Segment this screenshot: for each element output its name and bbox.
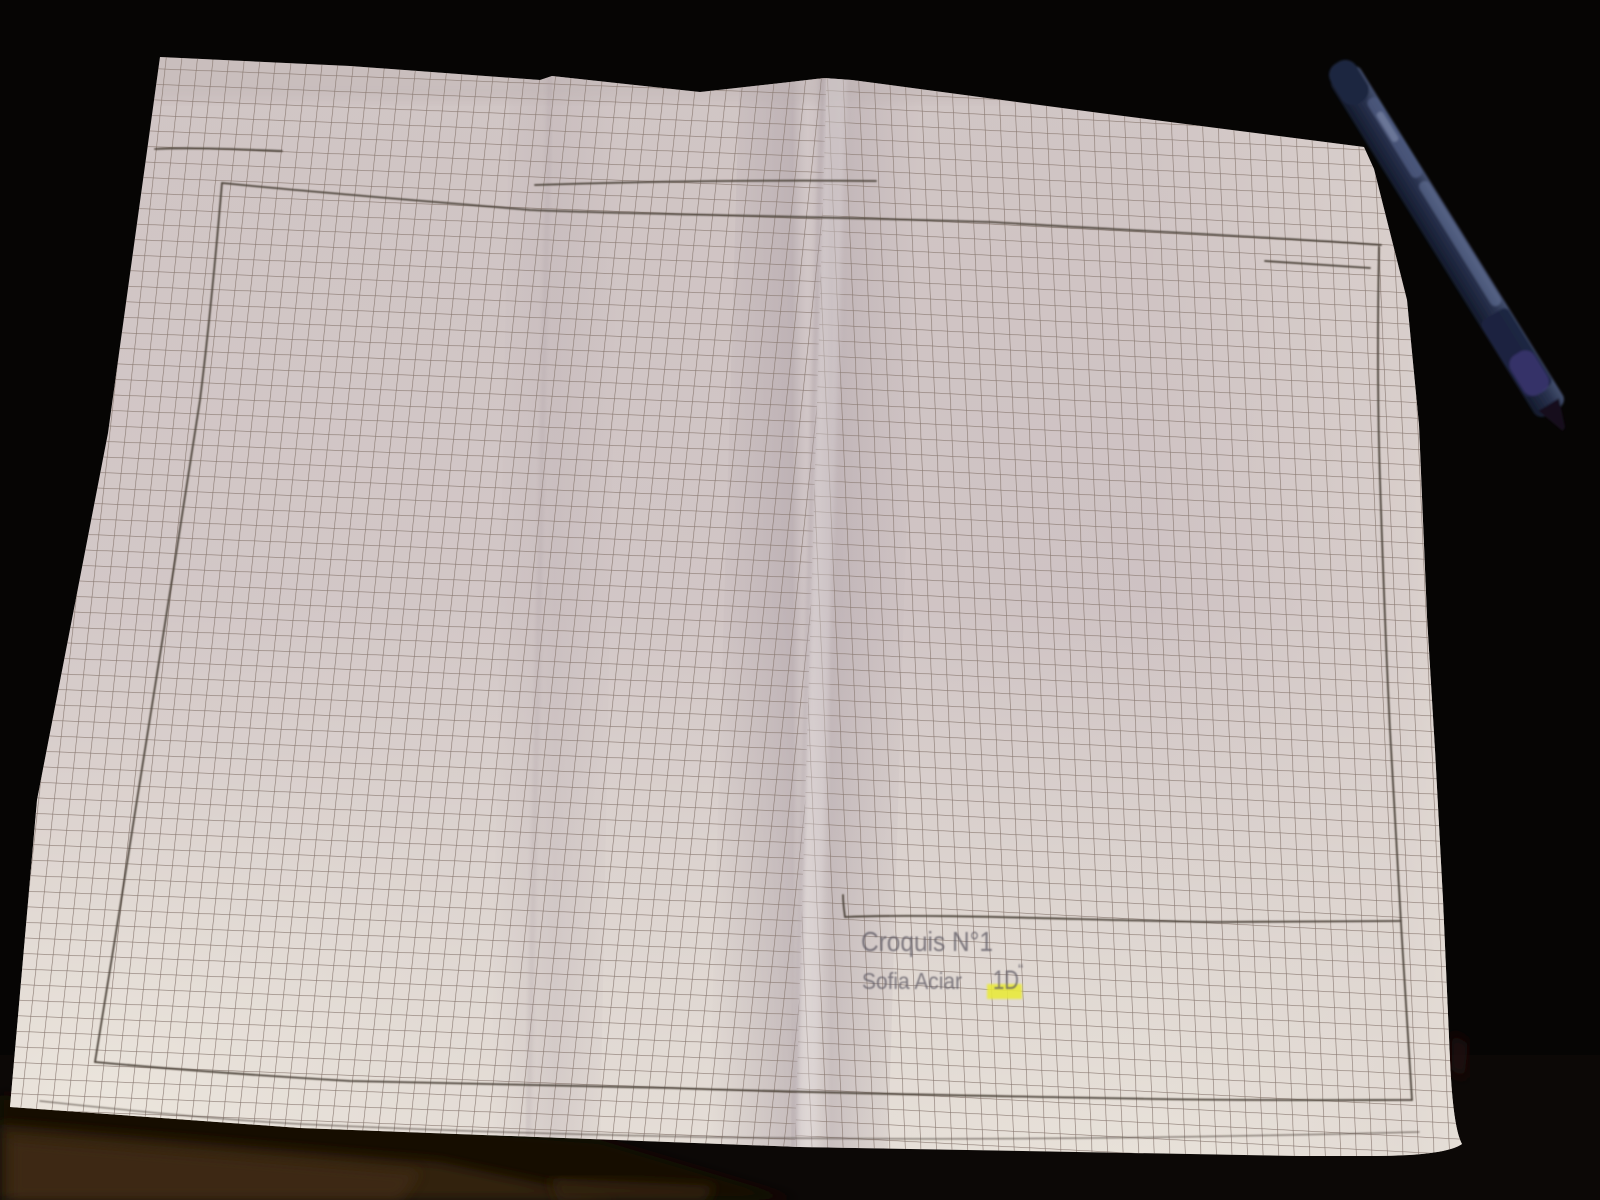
svg-text:“: “: [1018, 962, 1023, 979]
svg-text:Croquis N°1: Croquis N°1: [861, 926, 993, 957]
svg-text:Sofia Aciar: Sofia Aciar: [862, 968, 962, 994]
svg-text:1D: 1D: [993, 965, 1019, 995]
